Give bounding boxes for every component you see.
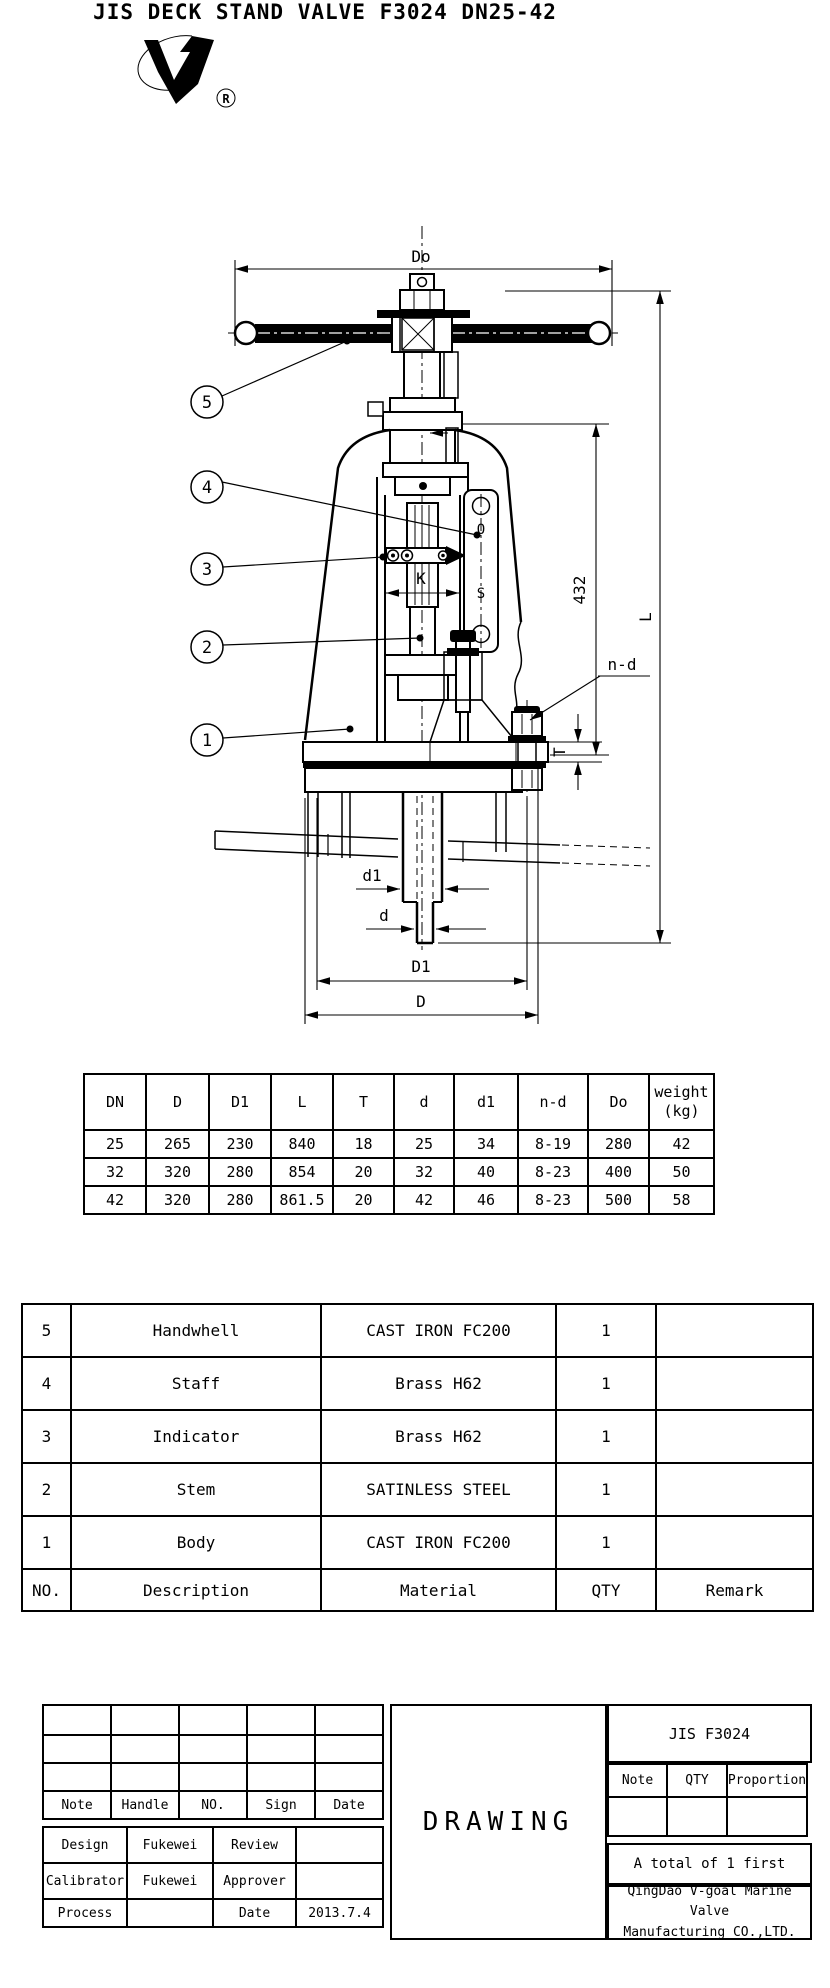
part-remark (656, 1357, 813, 1410)
part-qty: 1 (556, 1410, 656, 1463)
part-qty: 1 (556, 1304, 656, 1357)
cell: 20 (333, 1186, 394, 1214)
cell: 280 (588, 1130, 649, 1158)
part-material: Brass H62 (321, 1410, 556, 1463)
part-remark (656, 1410, 813, 1463)
footer-description: Description (71, 1569, 321, 1611)
spec-grid: Note QTY Proportion (607, 1763, 808, 1837)
signoff-value (297, 1864, 382, 1898)
dim-d-big-label: D (416, 992, 426, 1011)
dim-do-label: Do (411, 247, 430, 266)
dim-d1-small-label: d1 (362, 866, 381, 885)
spec-header: QTY (668, 1765, 726, 1796)
cell: 32 (84, 1158, 146, 1186)
spec-header: Note (609, 1765, 666, 1796)
col-header: n-d (518, 1074, 588, 1130)
part-description: Indicator (71, 1410, 321, 1463)
cell: 320 (146, 1186, 209, 1214)
cell: 500 (588, 1186, 649, 1214)
signoff-label: Date (214, 1900, 295, 1926)
callout-3: 3 (191, 553, 387, 585)
parts-row: 3 Indicator Brass H62 1 (22, 1410, 813, 1463)
revision-header: Date (316, 1792, 382, 1818)
spec-header: Proportion (728, 1765, 806, 1796)
col-header: T (333, 1074, 394, 1130)
dimension-table-header-row: DN D D1 L T d d1 n-d Do weight (kg) (84, 1074, 714, 1130)
valve-technical-drawing: O S (0, 0, 830, 1060)
part-number: 3 (22, 1410, 71, 1463)
part-material: SATINLESS STEEL (321, 1463, 556, 1516)
callout-5-number: 5 (202, 393, 212, 413)
cell: 20 (333, 1158, 394, 1186)
signoff-label: Approver (214, 1864, 295, 1898)
part-material: CAST IRON FC200 (321, 1516, 556, 1569)
dim-l-label: L (636, 612, 655, 622)
cell: 8-23 (518, 1158, 588, 1186)
cell: 42 (394, 1186, 454, 1214)
dim-t-label: T (550, 747, 569, 757)
footer-no: NO. (22, 1569, 71, 1611)
dimension-nd: n-d (530, 655, 650, 720)
indicator-plate: O S (464, 490, 498, 652)
signoff-label: Calibrator (44, 1864, 126, 1898)
signoff-grid: Design Fukewei Review Calibrator Fukewei… (42, 1826, 384, 1928)
dim-k-label: K (416, 569, 426, 588)
cell: 854 (271, 1158, 333, 1186)
indicator-shut-label: S (477, 586, 485, 602)
signoff-label: Design (44, 1828, 126, 1862)
company-name: QingDao V-goal Marine Valve Manufacturin… (607, 1885, 812, 1940)
col-header: DN (84, 1074, 146, 1130)
revision-header: Note (44, 1792, 110, 1818)
footer-material: Material (321, 1569, 556, 1611)
part-remark (656, 1516, 813, 1569)
cell: 400 (588, 1158, 649, 1186)
cell: 280 (209, 1158, 271, 1186)
part-qty: 1 (556, 1357, 656, 1410)
table-row: 25 265 230 840 18 25 34 8-19 280 42 (84, 1130, 714, 1158)
cell: 8-23 (518, 1186, 588, 1214)
part-qty: 1 (556, 1463, 656, 1516)
dim-d-small-label: d (379, 906, 389, 925)
dimension-t: T (548, 714, 602, 790)
part-remark (656, 1304, 813, 1357)
parts-row: 4 Staff Brass H62 1 (22, 1357, 813, 1410)
part-remark (656, 1463, 813, 1516)
cell: 25 (84, 1130, 146, 1158)
cell: 8-19 (518, 1130, 588, 1158)
cell: 265 (146, 1130, 209, 1158)
table-row: 32 320 280 854 20 32 40 8-23 400 50 (84, 1158, 714, 1186)
revision-grid: Note Handle NO. Sign Date (42, 1704, 384, 1820)
parts-row: 1 Body CAST IRON FC200 1 (22, 1516, 813, 1569)
cell: 861.5 (271, 1186, 333, 1214)
signoff-value (297, 1828, 382, 1862)
dim-nd-label: n-d (608, 655, 637, 674)
cell: 32 (394, 1158, 454, 1186)
col-header: weight (kg) (649, 1074, 714, 1130)
cell: 42 (84, 1186, 146, 1214)
callout-5: 5 (191, 338, 351, 419)
drawing-sheet: R JIS DECK STAND VALVE F3024 DN25-42 (0, 0, 830, 1988)
dimension-table: DN D D1 L T d d1 n-d Do weight (kg) 25 2… (83, 1073, 715, 1215)
part-number: 4 (22, 1357, 71, 1410)
indicator-pointer (386, 546, 466, 565)
callout-2-number: 2 (202, 638, 212, 658)
signoff-label: Process (44, 1900, 126, 1926)
footer-remark: Remark (656, 1569, 813, 1611)
col-header: d (394, 1074, 454, 1130)
cell: 40 (454, 1158, 518, 1186)
callout-4-number: 4 (202, 478, 212, 498)
signoff-name: Fukewei (128, 1828, 212, 1862)
callout-1-number: 1 (202, 731, 212, 751)
dim-d1-big-label: D1 (411, 957, 430, 976)
signoff-name: Fukewei (128, 1864, 212, 1898)
cell: 58 (649, 1186, 714, 1214)
stand-legs (308, 792, 506, 858)
col-header: Do (588, 1074, 649, 1130)
cell: 42 (649, 1130, 714, 1158)
cell: 320 (146, 1158, 209, 1186)
cell: 25 (394, 1130, 454, 1158)
part-number: 5 (22, 1304, 71, 1357)
document-code: JIS F3024 (607, 1704, 812, 1763)
cell: 230 (209, 1130, 271, 1158)
signoff-name (128, 1900, 212, 1926)
signoff-label: Review (214, 1828, 295, 1862)
parts-row: 2 Stem SATINLESS STEEL 1 (22, 1463, 813, 1516)
cell: 50 (649, 1158, 714, 1186)
parts-footer-row: NO. Description Material QTY Remark (22, 1569, 813, 1611)
revision-header: Sign (248, 1792, 314, 1818)
part-number: 2 (22, 1463, 71, 1516)
dim-432-label: 432 (570, 576, 589, 605)
dimension-d-small: d (366, 906, 486, 929)
part-description: Handwhell (71, 1304, 321, 1357)
parts-row: 5 Handwhell CAST IRON FC200 1 (22, 1304, 813, 1357)
part-description: Stem (71, 1463, 321, 1516)
cell: 34 (454, 1130, 518, 1158)
stem-and-staff (368, 352, 462, 472)
col-header: D (146, 1074, 209, 1130)
part-material: Brass H62 (321, 1357, 556, 1410)
col-header: L (271, 1074, 333, 1130)
cell: 18 (333, 1130, 394, 1158)
part-description: Staff (71, 1357, 321, 1410)
signoff-date: 2013.7.4 (297, 1900, 382, 1926)
drawing-type-label: DRAWING (390, 1704, 607, 1940)
part-number: 1 (22, 1516, 71, 1569)
col-header: D1 (209, 1074, 271, 1130)
part-material: CAST IRON FC200 (321, 1304, 556, 1357)
col-header: d1 (454, 1074, 518, 1130)
cell: 840 (271, 1130, 333, 1158)
part-description: Body (71, 1516, 321, 1569)
parts-list-table: 5 Handwhell CAST IRON FC200 1 4 Staff Br… (21, 1303, 814, 1612)
cell: 46 (454, 1186, 518, 1214)
handwheel (235, 274, 610, 352)
cell: 280 (209, 1186, 271, 1214)
revision-header: Handle (112, 1792, 178, 1818)
sheet-total-note: A total of 1 first (607, 1843, 812, 1885)
part-qty: 1 (556, 1516, 656, 1569)
footer-qty: QTY (556, 1569, 656, 1611)
callout-3-number: 3 (202, 560, 212, 580)
table-row: 42 320 280 861.5 20 42 46 8-23 500 58 (84, 1186, 714, 1214)
revision-header: NO. (180, 1792, 246, 1818)
